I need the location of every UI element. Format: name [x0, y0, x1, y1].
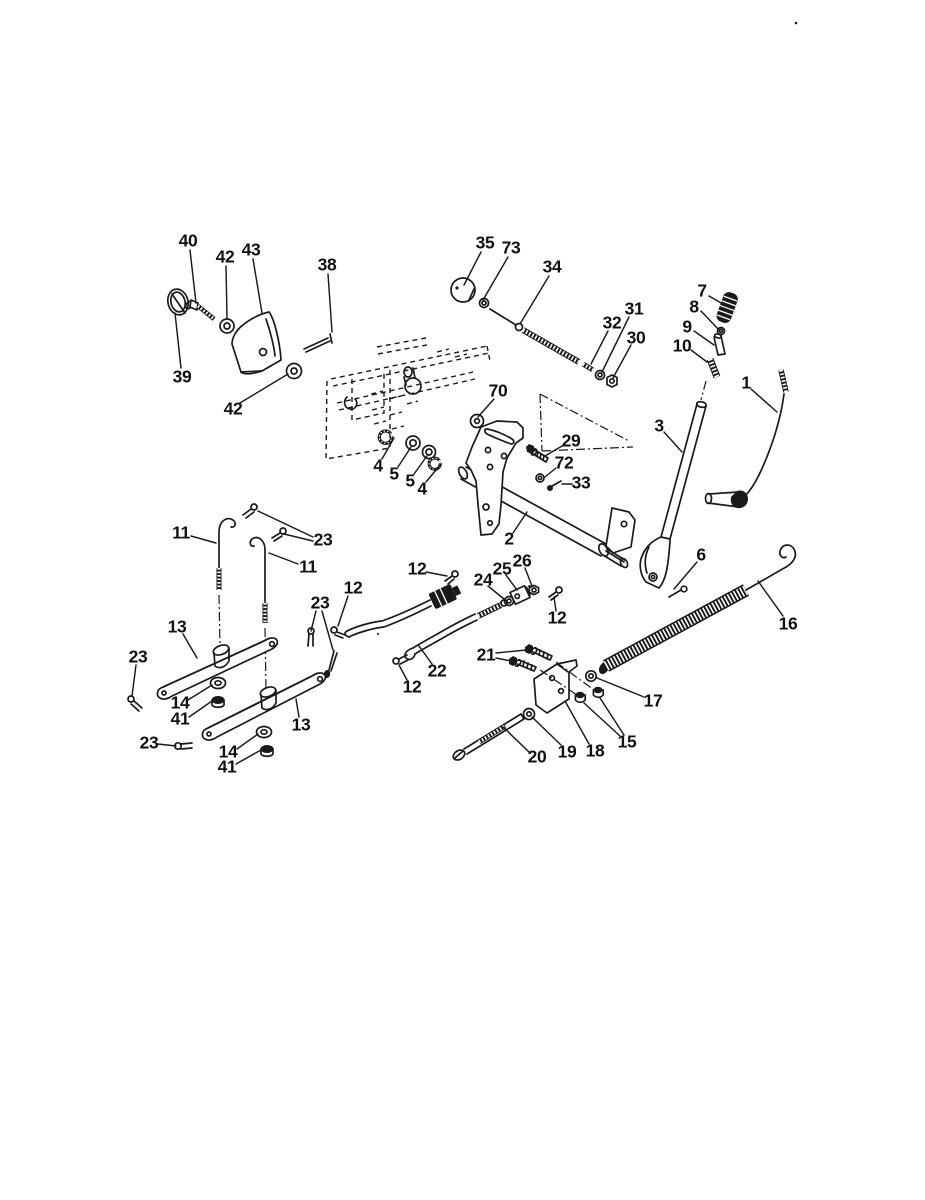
callout-3: 3	[654, 416, 663, 437]
callout-labels-layer: 4042433839423573343231307891013702972332…	[0, 0, 925, 1200]
callout-11: 11	[172, 523, 190, 544]
callout-16: 16	[779, 614, 798, 635]
callout-2: 2	[504, 529, 513, 550]
callout-23: 23	[140, 733, 159, 754]
callout-39: 39	[173, 367, 192, 388]
callout-5: 5	[389, 464, 398, 485]
callout-5: 5	[405, 471, 414, 492]
callout-38: 38	[318, 255, 337, 276]
callout-34: 34	[543, 257, 562, 278]
callout-9: 9	[682, 317, 691, 338]
callout-20: 20	[528, 747, 547, 768]
callout-24: 24	[474, 570, 493, 591]
callout-4: 4	[373, 456, 382, 477]
callout-13: 13	[292, 715, 311, 736]
callout-12: 12	[548, 608, 567, 629]
callout-1: 1	[741, 373, 750, 394]
callout-12: 12	[344, 578, 363, 599]
callout-10: 10	[673, 336, 692, 357]
callout-18: 18	[586, 741, 605, 762]
callout-42: 42	[224, 399, 243, 420]
callout-8: 8	[689, 297, 698, 318]
callout-23: 23	[129, 647, 148, 668]
diagram-page: 4042433839423573343231307891013702972332…	[0, 0, 925, 1200]
callout-41: 41	[218, 757, 237, 778]
callout-4: 4	[417, 479, 426, 500]
callout-43: 43	[242, 240, 261, 261]
callout-41: 41	[171, 709, 190, 730]
callout-19: 19	[558, 742, 577, 763]
callout-42: 42	[216, 247, 235, 268]
callout-6: 6	[696, 545, 705, 566]
callout-21: 21	[477, 645, 496, 666]
callout-25: 25	[493, 559, 512, 580]
callout-13: 13	[168, 617, 187, 638]
callout-31: 31	[625, 299, 644, 320]
callout-40: 40	[179, 231, 198, 252]
callout-29: 29	[562, 431, 581, 452]
callout-23: 23	[314, 530, 333, 551]
callout-73: 73	[502, 238, 521, 259]
callout-7: 7	[697, 281, 706, 302]
callout-11: 11	[299, 557, 317, 578]
callout-23: 23	[311, 593, 330, 614]
callout-35: 35	[476, 233, 495, 254]
callout-15: 15	[618, 732, 637, 753]
callout-26: 26	[513, 551, 532, 572]
callout-12: 12	[403, 677, 422, 698]
callout-33: 33	[572, 473, 591, 494]
callout-72: 72	[555, 453, 574, 474]
callout-70: 70	[489, 381, 508, 402]
callout-17: 17	[644, 691, 663, 712]
callout-30: 30	[627, 328, 646, 349]
callout-32: 32	[603, 313, 622, 334]
callout-12: 12	[408, 559, 427, 580]
callout-22: 22	[428, 661, 447, 682]
